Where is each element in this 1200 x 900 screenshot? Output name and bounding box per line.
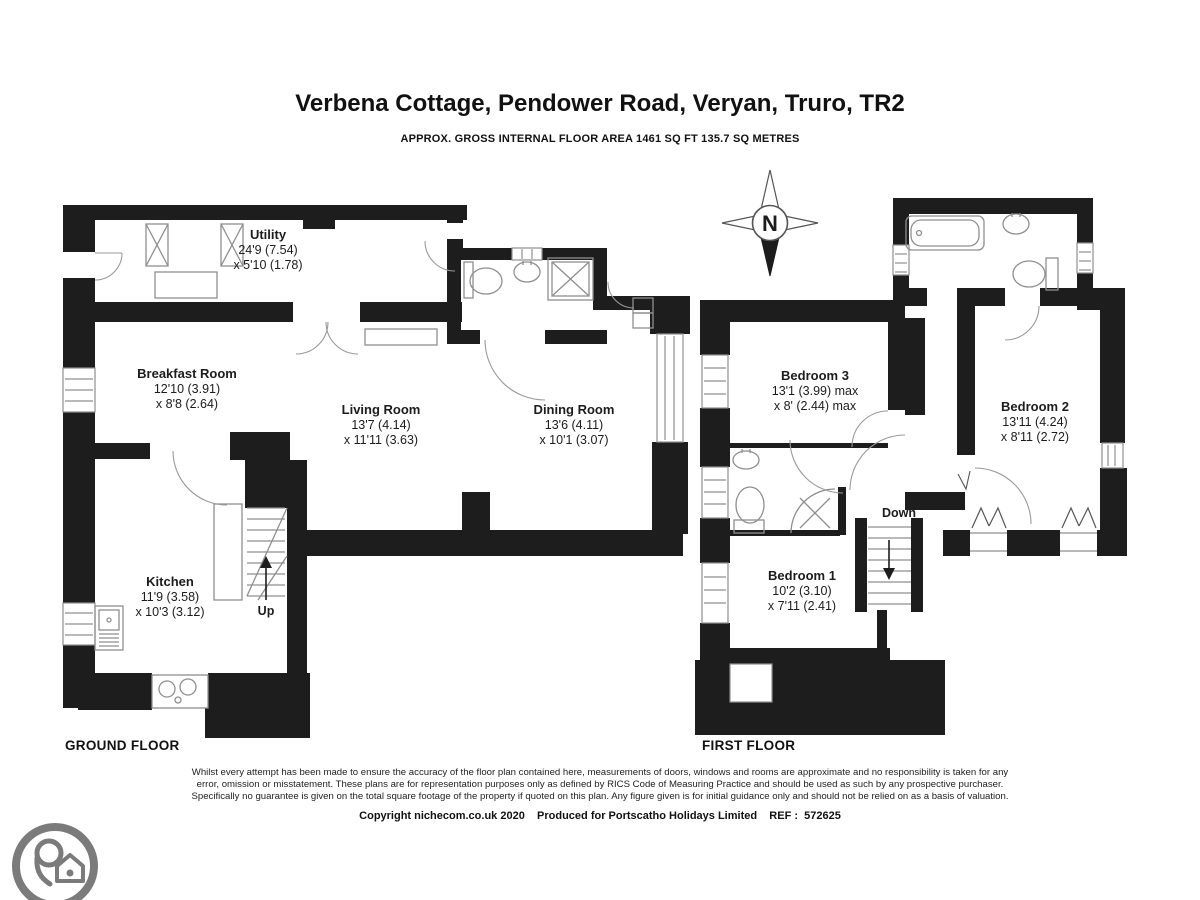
- room-dim1: 24'9 (7.54): [233, 243, 302, 259]
- room-label-breakfast-room: Breakfast Room 12'10 (3.91) x 8'8 (2.64): [137, 366, 237, 413]
- room-dim1: 12'10 (3.91): [137, 382, 237, 398]
- room-dim1: 10'2 (3.10): [768, 584, 836, 600]
- stairs-down-label: Down: [882, 506, 916, 520]
- room-name: Bedroom 3: [772, 368, 858, 384]
- room-label-kitchen: Kitchen 11'9 (3.58) x 10'3 (3.12): [135, 574, 204, 621]
- room-dim2: x 10'3 (3.12): [135, 605, 204, 621]
- page-subtitle: APPROX. GROSS INTERNAL FLOOR AREA 1461 S…: [400, 133, 799, 145]
- room-dim1: 13'1 (3.99) max: [772, 384, 858, 400]
- room-dim2: x 10'1 (3.07): [534, 433, 615, 449]
- ground-floor-fixtures: [95, 224, 653, 708]
- room-label-bedroom-1: Bedroom 1 10'2 (3.10) x 7'11 (2.41): [768, 568, 836, 615]
- room-dim2: x 7'11 (2.41): [768, 599, 836, 615]
- room-name: Bedroom 2: [1001, 399, 1069, 415]
- ground-floor-plan: [63, 205, 690, 738]
- ground-floor-caption: GROUND FLOOR: [65, 738, 180, 753]
- floorplan-page: N Verbena Cottage, Pendower Road, Veryan…: [0, 0, 1200, 900]
- room-label-bedroom-3: Bedroom 3 13'1 (3.99) max x 8' (2.44) ma…: [772, 368, 858, 415]
- company-logo-icon: [16, 827, 94, 900]
- room-name: Utility: [233, 227, 302, 243]
- room-dim1: 13'7 (4.14): [342, 418, 421, 434]
- first-floor-caption: FIRST FLOOR: [702, 738, 795, 753]
- room-dim2: x 8'11 (2.72): [1001, 430, 1069, 446]
- room-name: Living Room: [342, 402, 421, 418]
- room-dim1: 11'9 (3.58): [135, 590, 204, 606]
- room-dim2: x 8' (2.44) max: [772, 399, 858, 415]
- room-label-living-room: Living Room 13'7 (4.14) x 11'11 (3.63): [342, 402, 421, 449]
- disclaimer-line-3: Specifically no guarantee is given on th…: [0, 791, 1200, 802]
- room-dim2: x 11'11 (3.63): [342, 433, 421, 449]
- room-label-utility: Utility 24'9 (7.54) x 5'10 (1.78): [233, 227, 302, 274]
- room-name: Breakfast Room: [137, 366, 237, 382]
- disclaimer-line-1: Whilst every attempt has been made to en…: [0, 767, 1200, 778]
- room-label-dining-room: Dining Room 13'6 (4.11) x 10'1 (3.07): [534, 402, 615, 449]
- room-dim2: x 8'8 (2.64): [137, 397, 237, 413]
- room-name: Kitchen: [135, 574, 204, 590]
- room-name: Bedroom 1: [768, 568, 836, 584]
- room-dim1: 13'11 (4.24): [1001, 415, 1069, 431]
- first-floor-plan: [695, 198, 1127, 735]
- room-label-bedroom-2: Bedroom 2 13'11 (4.24) x 8'11 (2.72): [1001, 399, 1069, 446]
- room-dim1: 13'6 (4.11): [534, 418, 615, 434]
- disclaimer-line-2: error, omission or misstatement. These p…: [0, 779, 1200, 790]
- copyright-line: Copyright nichecom.co.uk 2020 Produced f…: [0, 810, 1200, 822]
- stairs-up-label: Up: [258, 604, 275, 618]
- compass-rose-icon: N: [722, 170, 818, 276]
- room-dim2: x 5'10 (1.78): [233, 258, 302, 274]
- compass-north-label: N: [762, 211, 778, 236]
- page-title: Verbena Cottage, Pendower Road, Veryan, …: [295, 90, 905, 118]
- room-name: Dining Room: [534, 402, 615, 418]
